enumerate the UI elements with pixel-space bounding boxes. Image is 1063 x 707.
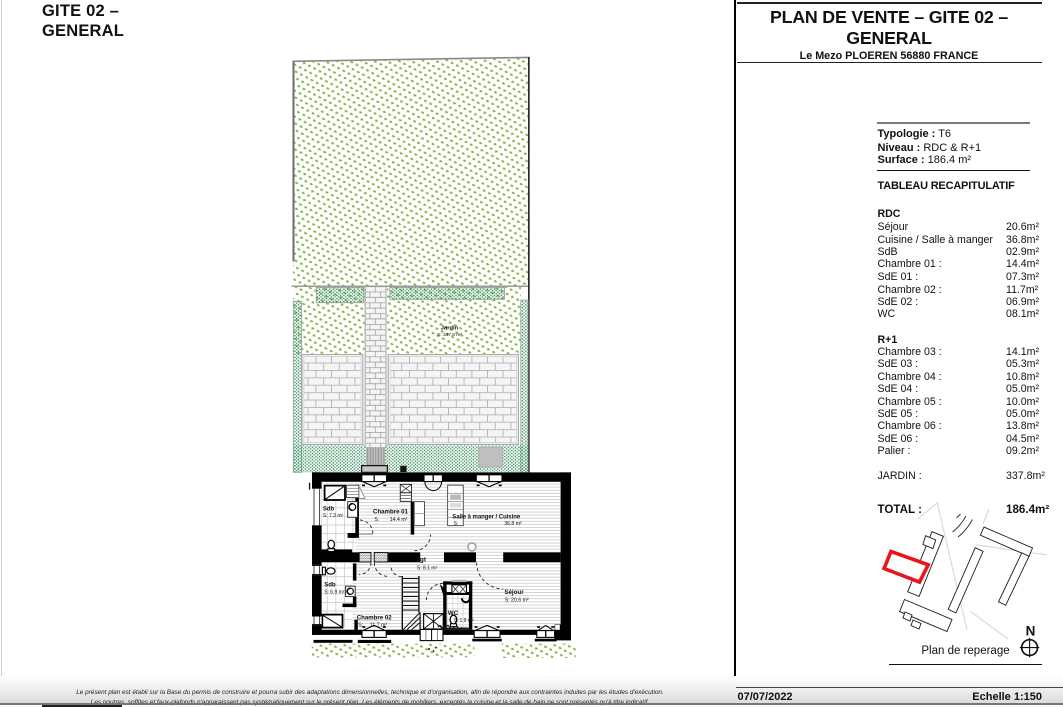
- svg-text:Séjour: Séjour: [504, 589, 524, 596]
- svg-text:Jardin: Jardin: [441, 326, 459, 332]
- svg-text:N: N: [1026, 624, 1036, 639]
- svg-text:11.7 m²: 11.7 m²: [370, 623, 387, 629]
- svg-text:Salle à manger / Cuisine: Salle à manger / Cuisine: [452, 515, 521, 521]
- svg-text:S: 1.9 m²: S: 1.9 m²: [453, 618, 474, 624]
- svg-text:S: 6.9 m²: S: 6.9 m²: [324, 590, 345, 596]
- svg-text:Chambre 02: Chambre 02: [357, 614, 392, 621]
- svg-text:S:: S:: [374, 517, 379, 523]
- svg-text:S:: S:: [454, 521, 459, 527]
- svg-text:36.8 m²: 36.8 m²: [504, 521, 522, 527]
- svg-text:WC: WC: [448, 610, 459, 617]
- svg-text:S: 337.8 m²: S: 337.8 m²: [437, 332, 462, 338]
- svg-text:14.4 m²: 14.4 m²: [390, 517, 408, 523]
- svg-text:Chambre 01: Chambre 01: [373, 509, 408, 516]
- svg-text:Sdb: Sdb: [323, 507, 335, 513]
- svg-text:Dgt: Dgt: [415, 557, 427, 564]
- svg-text:S:: S:: [358, 623, 363, 629]
- svg-text:Sdb: Sdb: [324, 583, 336, 589]
- svg-text:S: 20.6 m²: S: 20.6 m²: [505, 597, 529, 603]
- svg-text:S: 8.1 m²: S: 8.1 m²: [417, 565, 438, 571]
- svg-text:S: 7.3 m²: S: 7.3 m²: [323, 513, 344, 519]
